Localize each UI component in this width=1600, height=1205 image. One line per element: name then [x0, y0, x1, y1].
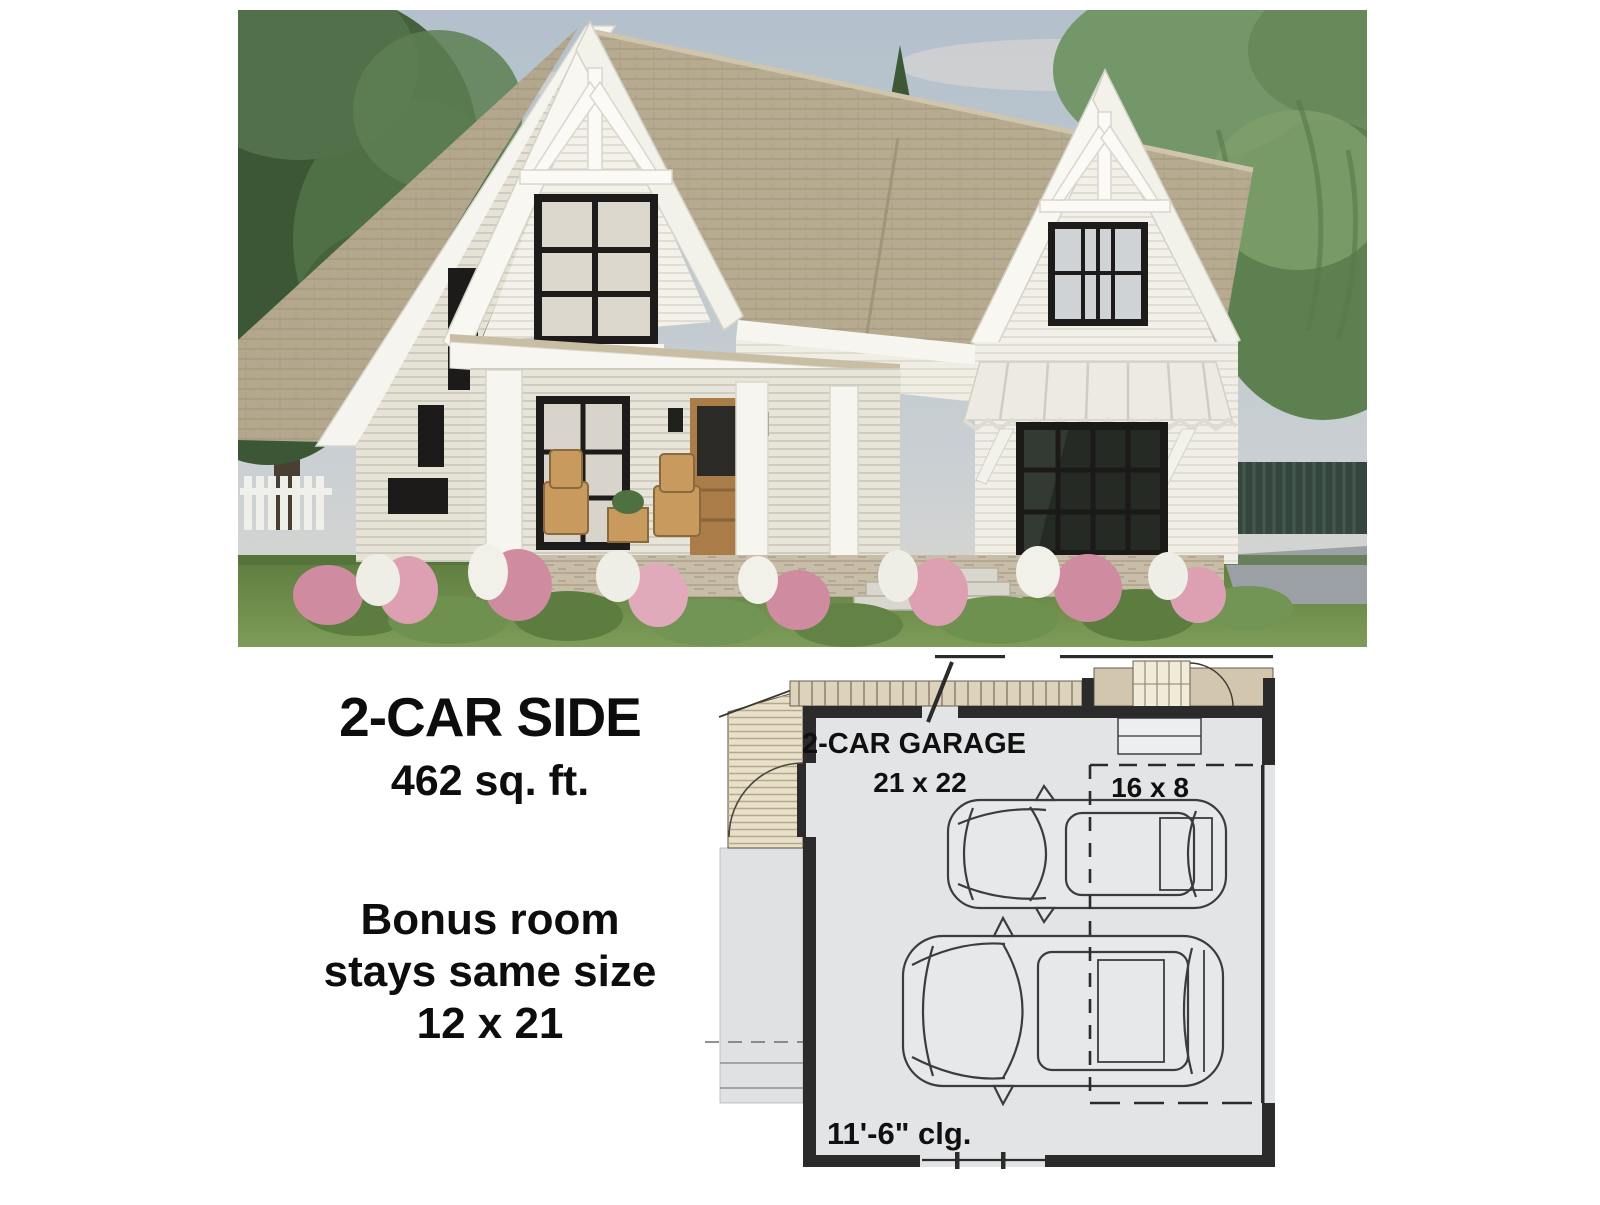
- plan-area: 462 sq. ft.: [262, 757, 718, 806]
- garage-door-dims: 16 x 8: [1111, 772, 1189, 803]
- info-panel: 2-CAR SIDE 462 sq. ft. Bonus room stays …: [262, 690, 718, 1050]
- house-photo: [238, 10, 1367, 647]
- porch: [450, 334, 906, 572]
- metal-fence: [1226, 462, 1367, 534]
- side-deck: [719, 684, 808, 848]
- left-small-window-lower: [388, 478, 448, 514]
- top-deck-strip: [790, 655, 1275, 712]
- plan-note: Bonus room stays same size 12 x 21: [262, 894, 718, 1050]
- floor-plan-svg: 2-CAR GARAGE 21 x 22 16 x 8 11'-6" clg.: [700, 648, 1380, 1200]
- garage-room-label: 2-CAR GARAGE: [802, 728, 1026, 760]
- plan-note-line1: Bonus room: [262, 894, 718, 946]
- upper-wall-line-a: [935, 655, 1005, 658]
- car-top: [948, 786, 1226, 922]
- left-small-window-upper: [418, 405, 444, 467]
- right-gable-window: [1048, 222, 1148, 326]
- left-gable-window: [528, 194, 664, 353]
- porch-plant: [612, 490, 644, 514]
- garage-door-line: [1261, 765, 1265, 1103]
- right-large-window: [1016, 422, 1168, 558]
- upper-wall-line-b: [1060, 655, 1273, 658]
- garage-floor-plan: 2-CAR GARAGE 21 x 22 16 x 8 11'-6" clg.: [700, 648, 1380, 1200]
- house-photo-svg: [238, 10, 1367, 647]
- workbench: [1118, 718, 1201, 754]
- plan-note-line3: 12 x 21: [262, 998, 718, 1050]
- garage-room-dims: 21 x 22: [873, 767, 966, 798]
- car-bottom: [903, 918, 1223, 1104]
- plan-note-line2: stays same size: [262, 946, 718, 998]
- concrete-apron: [705, 848, 803, 1103]
- porch-sconce-left: [668, 408, 683, 432]
- garage-ceiling-height: 11'-6" clg.: [827, 1116, 971, 1151]
- plan-title: 2-CAR SIDE: [262, 690, 718, 745]
- wall-stub-2: [1263, 678, 1275, 706]
